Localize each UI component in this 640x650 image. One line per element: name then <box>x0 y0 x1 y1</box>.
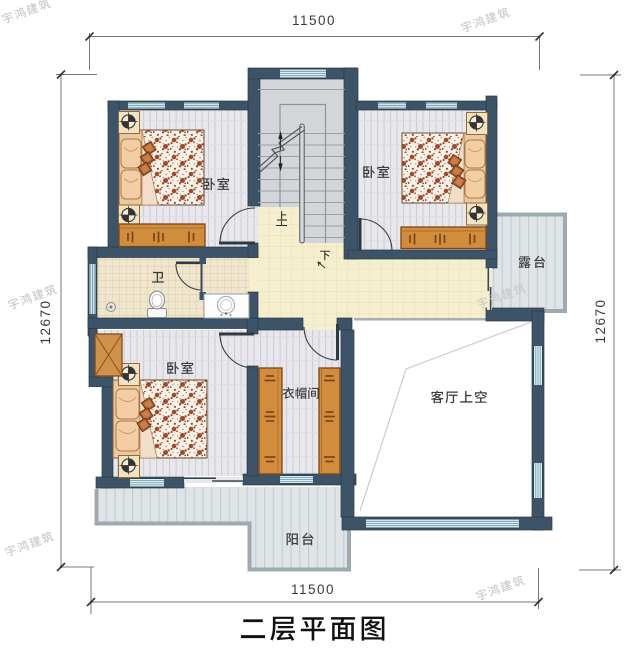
svg-text:11500: 11500 <box>291 582 335 597</box>
svg-text:12670: 12670 <box>38 299 53 344</box>
svg-text:11500: 11500 <box>292 13 336 28</box>
svg-text:12670: 12670 <box>593 298 608 343</box>
